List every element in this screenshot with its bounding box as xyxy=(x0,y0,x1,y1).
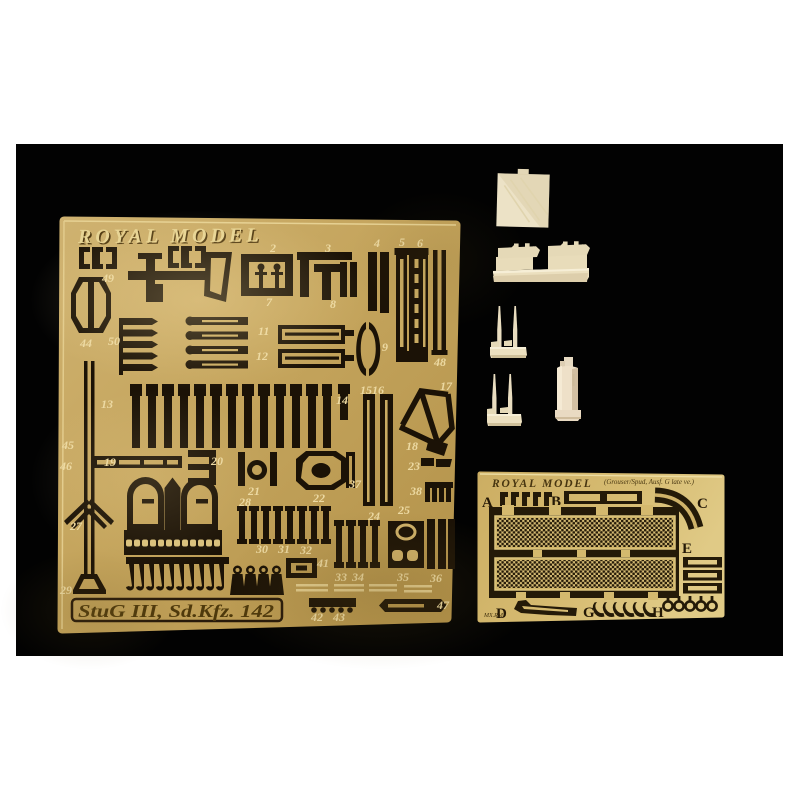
svg-text:9: 9 xyxy=(382,340,388,354)
svg-text:1516: 1516 xyxy=(360,383,384,397)
svg-text:17: 17 xyxy=(440,379,453,393)
svg-text:H: H xyxy=(652,605,664,621)
svg-text:MX.RM: MX.RM xyxy=(483,613,504,619)
svg-text:E: E xyxy=(682,541,692,557)
svg-text:(Grouser/Spud, Ausf. G late ve: (Grouser/Spud, Ausf. G late ve.) xyxy=(604,478,695,486)
svg-text:14: 14 xyxy=(336,393,348,407)
svg-text:38: 38 xyxy=(409,484,422,498)
svg-text:18: 18 xyxy=(406,439,418,453)
svg-text:48: 48 xyxy=(433,355,446,369)
svg-text:23: 23 xyxy=(407,459,420,473)
svg-text:22: 22 xyxy=(312,491,325,505)
svg-text:ROYAL MODEL: ROYAL MODEL xyxy=(491,478,593,490)
svg-text:37: 37 xyxy=(348,477,362,491)
svg-text:C: C xyxy=(697,496,708,512)
